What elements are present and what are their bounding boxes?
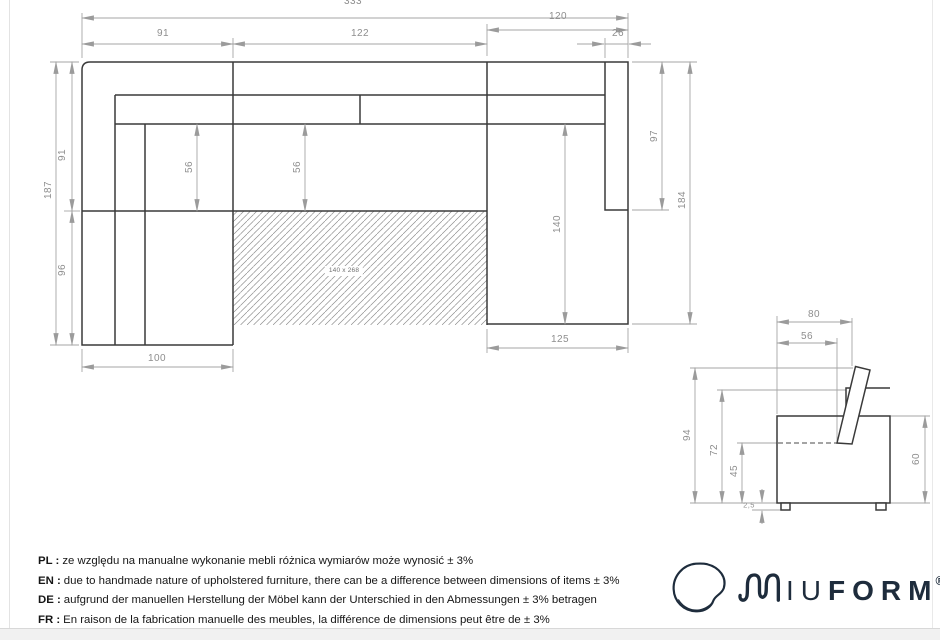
dim-side-seat-height: 45 bbox=[729, 465, 741, 477]
sofa-dimension-drawing bbox=[0, 0, 940, 640]
disclaimer-row-pl: PL :ze względu na manualne wykonanie meb… bbox=[38, 552, 619, 572]
miuform-bean-icon bbox=[670, 560, 730, 614]
dim-side-backrest-height: 72 bbox=[709, 444, 721, 456]
dim-side-leg-height: 2,5 bbox=[743, 501, 755, 510]
page-edge-right bbox=[932, 0, 933, 628]
dim-right-chaise-width: 125 bbox=[551, 334, 569, 346]
miuform-logo: IU FORM ® bbox=[670, 558, 940, 614]
dim-right-depth: 184 bbox=[677, 191, 689, 209]
side-view-drawing bbox=[690, 316, 930, 524]
logo-text-regular: IU bbox=[786, 577, 828, 605]
dim-seat-depth-left: 56 bbox=[184, 161, 196, 173]
miuform-wave-m-icon bbox=[738, 570, 782, 602]
dim-middle-width: 122 bbox=[351, 28, 369, 40]
dim-side-arm-height: 60 bbox=[911, 453, 923, 465]
dim-armrest-width: 26 bbox=[612, 28, 624, 40]
disclaimer-row-en: EN :due to handmade nature of upholstere… bbox=[38, 572, 619, 592]
registered-trademark-icon: ® bbox=[935, 573, 940, 588]
dim-upper-depth: 91 bbox=[57, 149, 69, 161]
disclaimer-lang-fr: FR : bbox=[38, 614, 60, 626]
dim-side-depth: 80 bbox=[808, 309, 820, 321]
dim-side-seat-depth: 56 bbox=[801, 331, 813, 343]
dim-total-depth: 187 bbox=[43, 181, 55, 199]
disclaimer-row-de: DE :aufgrund der manuellen Herstellung d… bbox=[38, 591, 619, 611]
disclaimer-block: PL :ze względu na manualne wykonanie meb… bbox=[38, 552, 619, 630]
disclaimer-lang-pl: PL : bbox=[38, 555, 59, 567]
disclaimer-text-en: due to handmade nature of upholstered fu… bbox=[64, 575, 620, 587]
disclaimer-lang-de: DE : bbox=[38, 594, 61, 606]
sofa-leg-back bbox=[876, 503, 886, 510]
dim-side-total-height: 94 bbox=[682, 429, 694, 441]
technical-drawing-sheet: 333 120 91 122 26 187 91 96 56 56 140 97… bbox=[0, 0, 940, 640]
disclaimer-text-de: aufgrund der manuellen Herstellung der M… bbox=[64, 594, 597, 606]
dim-left-width: 91 bbox=[157, 28, 169, 40]
page-edge-left bbox=[9, 0, 10, 628]
dim-lower-depth: 96 bbox=[57, 264, 69, 276]
disclaimer-text-fr: En raison de la fabrication manuelle des… bbox=[63, 614, 550, 626]
sofa-body-side bbox=[777, 416, 890, 503]
logo-text-bold: FORM bbox=[828, 577, 938, 605]
dim-seat-depth-middle: 56 bbox=[292, 161, 304, 173]
dim-chaise-length: 140 bbox=[552, 215, 564, 233]
tilted-backrest-cushion bbox=[837, 367, 870, 445]
disclaimer-text-pl: ze względu na manualne wykonanie mebli r… bbox=[62, 555, 473, 567]
page-bottom-margin bbox=[0, 628, 940, 640]
top-view-drawing bbox=[50, 13, 697, 372]
dim-armrest-length: 97 bbox=[649, 130, 661, 142]
disclaimer-lang-en: EN : bbox=[38, 575, 61, 587]
sofa-leg-front bbox=[781, 503, 790, 510]
dim-total-width: 333 bbox=[344, 0, 362, 8]
dim-right-width: 120 bbox=[549, 11, 567, 23]
dim-left-chaise-width: 100 bbox=[148, 353, 166, 365]
sleeping-area-label: 140 x 268 bbox=[325, 266, 363, 276]
